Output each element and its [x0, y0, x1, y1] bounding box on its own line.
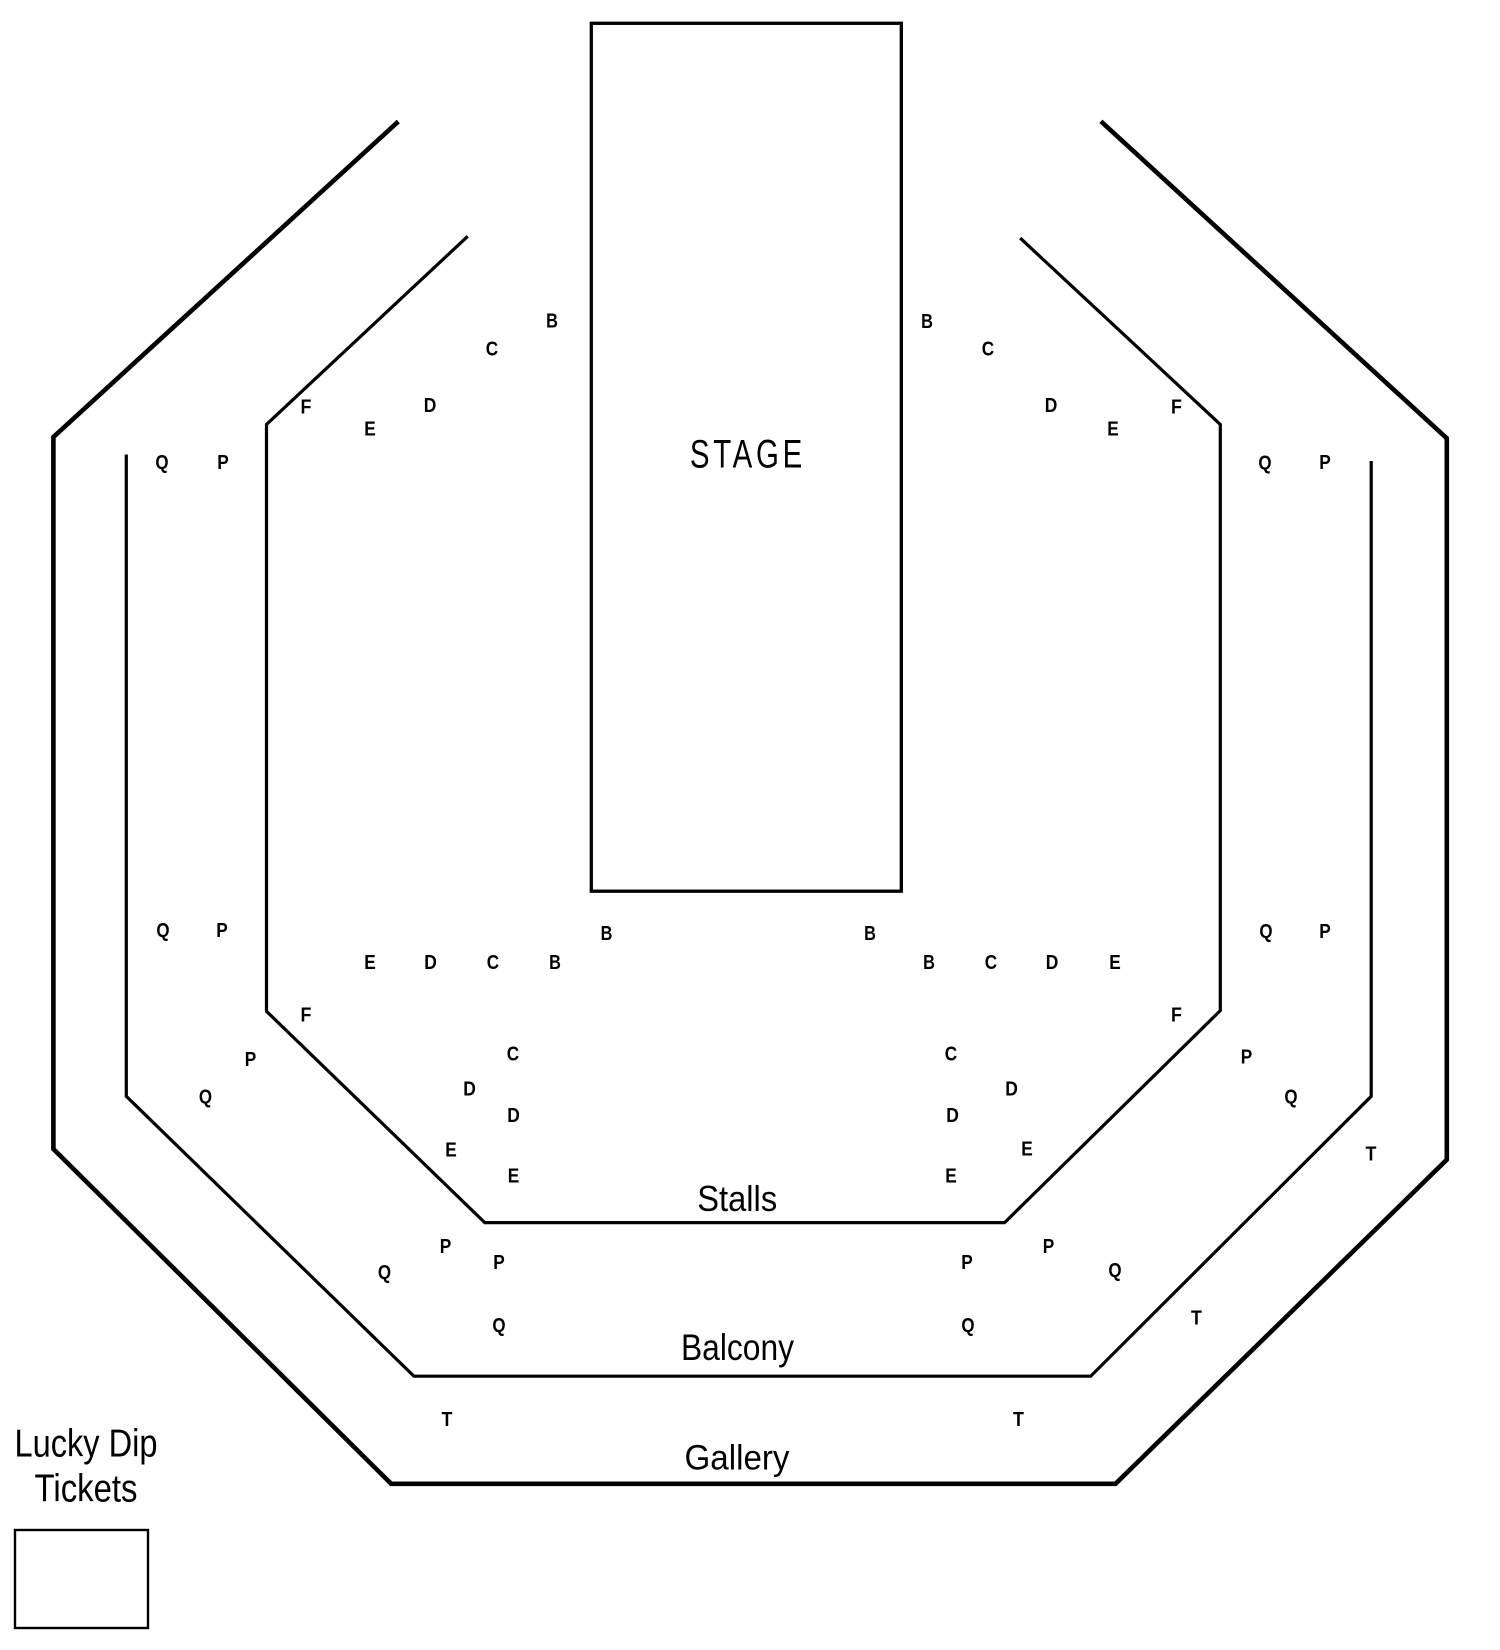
svg-text:E: E: [445, 1140, 457, 1162]
svg-text:B: B: [921, 311, 933, 333]
svg-text:P: P: [216, 920, 228, 942]
svg-text:Lucky Dip: Lucky Dip: [15, 1423, 158, 1466]
svg-text:P: P: [217, 452, 229, 474]
svg-text:C: C: [487, 952, 499, 974]
svg-text:C: C: [985, 952, 997, 974]
svg-text:P: P: [493, 1252, 505, 1274]
svg-text:F: F: [1171, 397, 1182, 419]
svg-text:Gallery: Gallery: [685, 1438, 790, 1478]
svg-text:B: B: [923, 952, 935, 974]
svg-text:D: D: [463, 1079, 476, 1101]
svg-text:Stalls: Stalls: [697, 1178, 777, 1219]
svg-text:D: D: [1045, 395, 1058, 417]
svg-text:P: P: [1319, 921, 1331, 943]
svg-text:Q: Q: [1284, 1087, 1297, 1109]
svg-text:B: B: [549, 952, 561, 974]
svg-text:T: T: [1366, 1144, 1377, 1166]
svg-text:E: E: [1107, 419, 1119, 441]
svg-text:Tickets: Tickets: [35, 1468, 138, 1511]
svg-text:STAGE: STAGE: [690, 433, 806, 477]
svg-text:Q: Q: [961, 1315, 974, 1337]
svg-text:F: F: [301, 1005, 312, 1027]
svg-text:Q: Q: [378, 1262, 391, 1284]
svg-text:Q: Q: [156, 920, 169, 942]
svg-text:C: C: [982, 339, 994, 361]
svg-text:C: C: [945, 1044, 957, 1066]
svg-text:P: P: [1043, 1236, 1055, 1258]
svg-text:F: F: [1171, 1005, 1182, 1027]
svg-text:D: D: [507, 1105, 520, 1127]
svg-text:B: B: [601, 923, 613, 945]
svg-text:Q: Q: [155, 452, 168, 474]
svg-text:T: T: [442, 1409, 453, 1431]
svg-text:D: D: [424, 952, 437, 974]
svg-text:B: B: [864, 923, 876, 945]
svg-text:Q: Q: [1259, 921, 1272, 943]
svg-text:Q: Q: [1258, 453, 1271, 475]
svg-text:P: P: [1241, 1047, 1253, 1069]
svg-text:D: D: [1005, 1079, 1018, 1101]
svg-text:F: F: [301, 397, 312, 419]
svg-text:Q: Q: [199, 1087, 212, 1109]
svg-text:D: D: [946, 1105, 959, 1127]
svg-text:D: D: [424, 395, 437, 417]
svg-text:C: C: [507, 1044, 519, 1066]
svg-text:P: P: [440, 1236, 452, 1258]
svg-text:E: E: [945, 1166, 957, 1188]
svg-text:T: T: [1013, 1409, 1024, 1431]
svg-text:Balcony: Balcony: [681, 1327, 794, 1368]
svg-text:E: E: [364, 419, 376, 441]
svg-text:P: P: [245, 1049, 257, 1071]
svg-text:P: P: [961, 1252, 973, 1274]
svg-text:E: E: [1109, 952, 1121, 974]
svg-text:D: D: [1046, 952, 1059, 974]
svg-text:Q: Q: [492, 1315, 505, 1337]
svg-text:E: E: [1021, 1139, 1033, 1161]
svg-text:Q: Q: [1108, 1260, 1121, 1282]
svg-text:P: P: [1319, 452, 1331, 474]
svg-text:E: E: [364, 952, 376, 974]
svg-text:B: B: [546, 311, 558, 333]
svg-text:C: C: [486, 339, 498, 361]
svg-text:T: T: [1191, 1308, 1202, 1330]
svg-text:E: E: [508, 1166, 520, 1188]
